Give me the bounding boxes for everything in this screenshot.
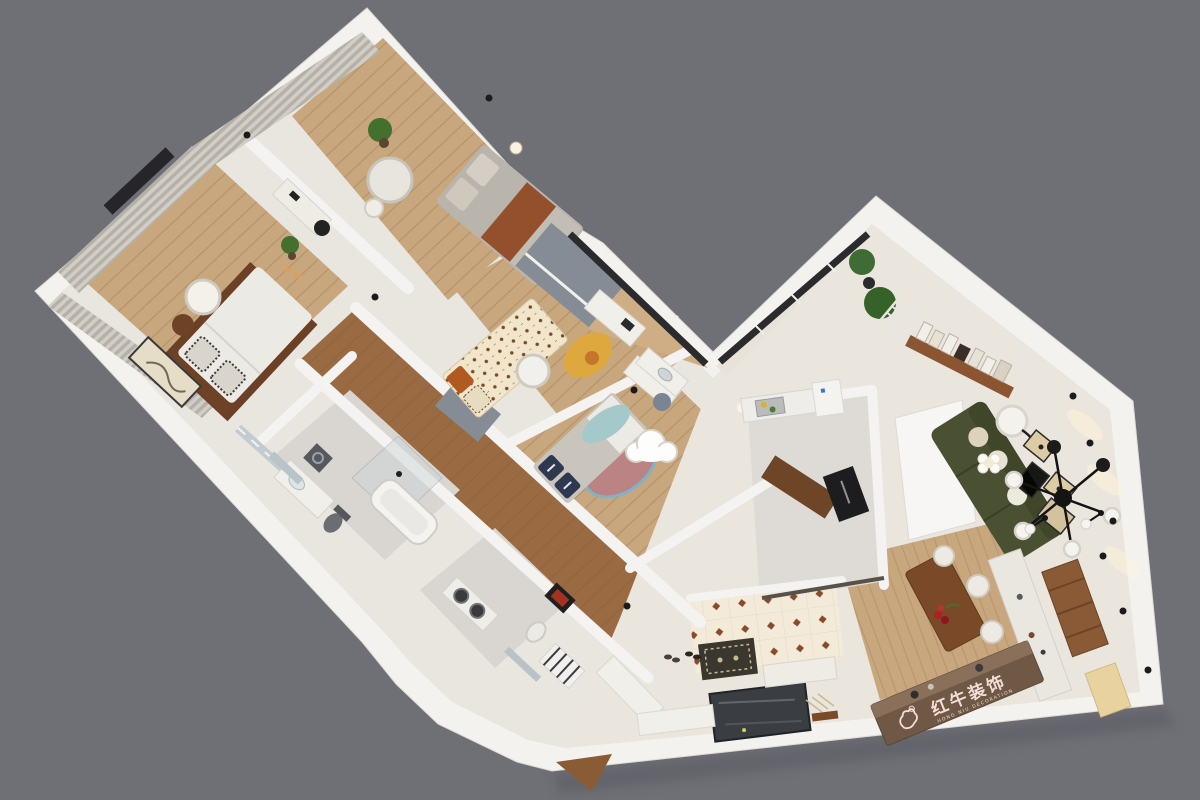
dining-chair-2 [967,575,989,597]
glass-panel [709,682,810,741]
palm-plant-1 [849,249,875,275]
bedroom2-plant-pot [379,138,389,148]
chandelier-globe-4 [1006,472,1022,488]
bedroom2-table-lamp [510,142,522,154]
bedroom2-stool [365,199,383,217]
bedroom2-round-table [368,158,412,202]
slipper-1 [284,268,292,273]
refrigerator [812,379,844,417]
palm-pot [863,277,875,289]
slipper-2 [293,274,301,279]
kids-a-round-table [517,355,549,387]
kids-b-desk-chair [653,393,671,411]
floorplan-canvas: 红牛装饰 HONG NIU DECORATION [0,0,1200,800]
master-plant-pot [288,252,296,260]
master-plant [281,236,299,254]
chandelier-hub [1054,489,1072,507]
chandelier-globe-6 [1096,458,1110,472]
kitchen-sink [755,397,785,417]
bedroom2-desk-chair [314,220,330,236]
chandelier-globe-5 [1047,440,1061,454]
dark-glass-panel [709,682,810,741]
chandelier-globe-2 [1064,541,1080,557]
bedroom2-plant [368,118,392,142]
apartment-3d-floorplan: 红牛装饰 HONG NIU DECORATION [0,0,1200,800]
gallery-motif-1 [1039,445,1044,450]
dining-chair-1 [934,546,954,566]
fridge-badge [821,388,826,393]
dining-chair-3 [981,621,1003,643]
fridge-body [812,379,844,417]
kids-a-play-chair [585,351,599,365]
doormat [698,638,758,681]
shower-head [396,471,402,477]
master-pendant-lamp [186,280,220,314]
master-bedside-stool [172,314,194,336]
palm-plant-2 [864,287,896,319]
